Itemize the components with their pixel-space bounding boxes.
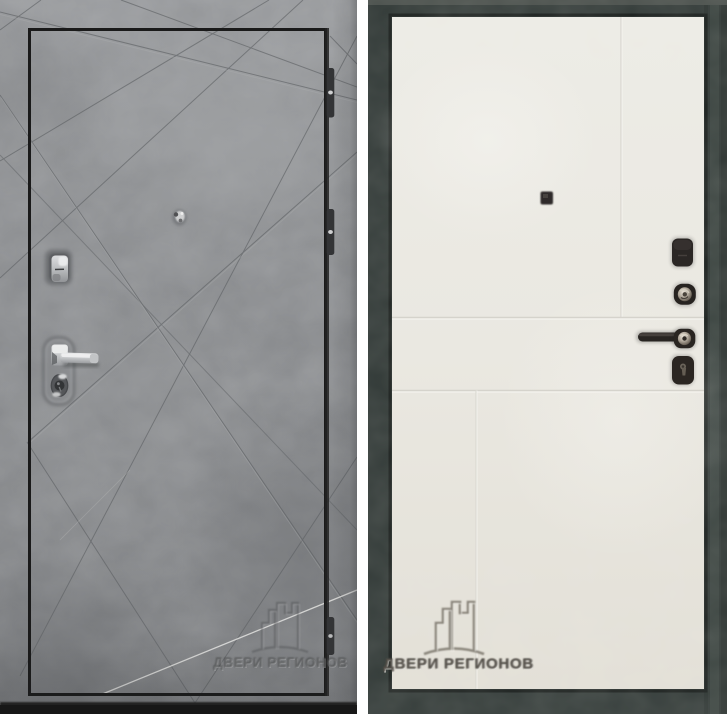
svg-text:ДВЕРИ РЕГИОНОВ: ДВЕРИ РЕГИОНОВ: [214, 655, 348, 670]
svg-text:ДВЕРИ РЕГИОНОВ: ДВЕРИ РЕГИОНОВ: [384, 656, 534, 673]
